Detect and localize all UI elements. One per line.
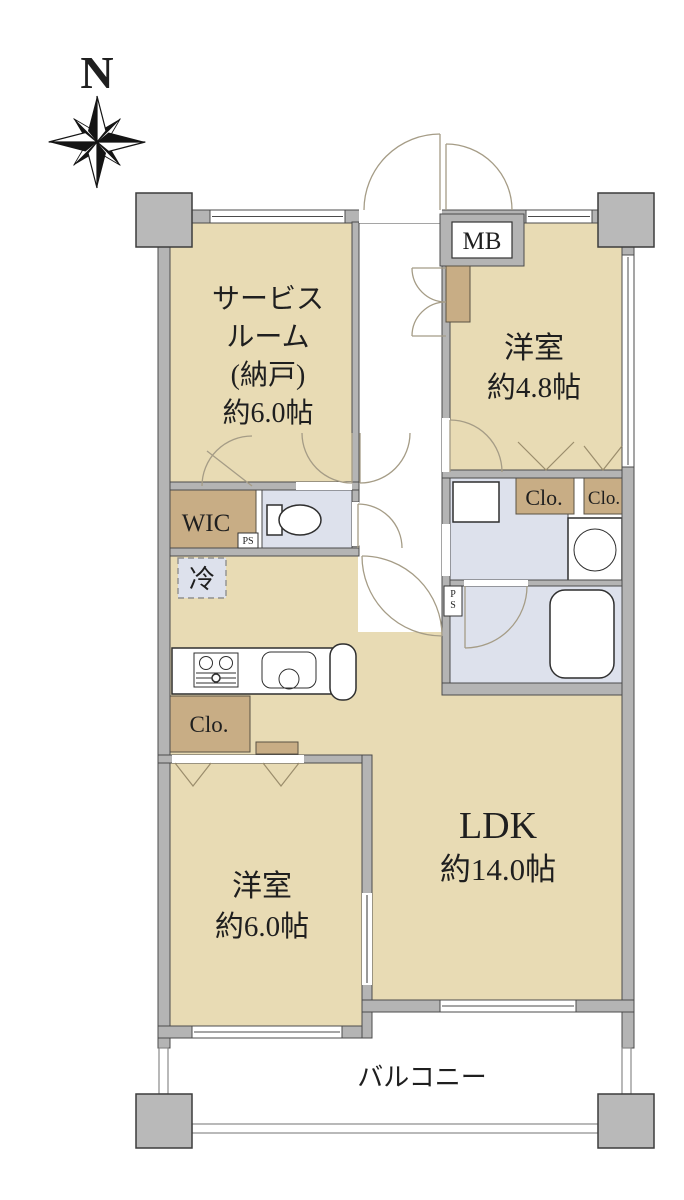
ldk-room-size: 約14.0帖 <box>440 852 556 887</box>
vanity-icon <box>453 482 499 522</box>
room-west60-extension <box>170 1000 362 1026</box>
pipe-space-bath-label: PS <box>448 589 459 611</box>
service-room-label-3: (納戸) <box>231 359 306 391</box>
corner-pillar-bottom-right <box>598 1094 654 1148</box>
closet-west48-b-label: Clo. <box>588 488 620 509</box>
compass-rose-icon <box>49 96 146 188</box>
floor-plan: MB PS PS <box>0 0 684 1200</box>
door-arc-entrance-main <box>364 134 440 210</box>
wall-left <box>158 210 170 1048</box>
shoe-cabinet <box>446 266 470 322</box>
ldk-room-label: LDK <box>459 805 538 847</box>
service-room-size: 約6.0帖 <box>222 397 313 429</box>
meter-box-label: MB <box>463 228 502 255</box>
wall-bath-bottom <box>442 683 622 695</box>
bath-door-opening <box>464 580 528 586</box>
west60-room-size: 約6.0帖 <box>215 910 309 943</box>
service-room-label-1: サービス <box>212 284 324 315</box>
hallway <box>358 222 442 632</box>
wic-label: WIC <box>182 510 231 537</box>
compass-n-label: N <box>80 47 113 98</box>
door-arc-entrance-child <box>446 144 512 210</box>
pipe-space-wic: PS <box>238 533 258 548</box>
west60-room-label: 洋室 <box>232 870 292 903</box>
north-compass: N <box>49 47 146 188</box>
closet-kitchen-strip <box>256 742 298 754</box>
west48-door-opening <box>442 418 450 472</box>
closet-west48-a-label: Clo. <box>525 485 562 510</box>
bathtub-icon <box>550 590 614 678</box>
wall-bath-left <box>442 478 450 683</box>
west48-room-size: 約4.8帖 <box>487 371 581 404</box>
balcony-railing-bottom <box>192 1124 598 1133</box>
wall-hall-left <box>352 222 359 502</box>
meter-box: MB <box>440 214 524 266</box>
pipe-space-bath: PS <box>444 586 462 616</box>
corner-pillar-bottom-left <box>136 1094 192 1148</box>
washroom-door-opening <box>442 524 450 576</box>
closet-kitchen-label: Clo. <box>190 712 229 737</box>
wall-west48-bottom <box>442 470 622 478</box>
west60-door-opening <box>172 755 304 763</box>
toilet-bowl-icon <box>279 505 321 535</box>
entrance-opening <box>359 206 442 223</box>
corner-pillar-top-left <box>136 193 192 247</box>
balcony-railing-right <box>622 1048 631 1094</box>
pipe-space-wic-label: PS <box>242 536 253 547</box>
washer-space <box>568 518 622 582</box>
kitchen-counter-end <box>330 644 356 700</box>
balcony-label: バルコニー <box>357 1063 486 1092</box>
wall-wic-bottom <box>170 548 359 556</box>
corner-pillar-top-right <box>598 193 654 247</box>
balcony-railing-left <box>159 1048 168 1094</box>
service-room-label-2: ルーム <box>226 322 309 353</box>
refrigerator-label: 冷 <box>189 565 215 594</box>
service-door-opening <box>296 482 352 490</box>
west48-room-label: 洋室 <box>504 332 564 365</box>
